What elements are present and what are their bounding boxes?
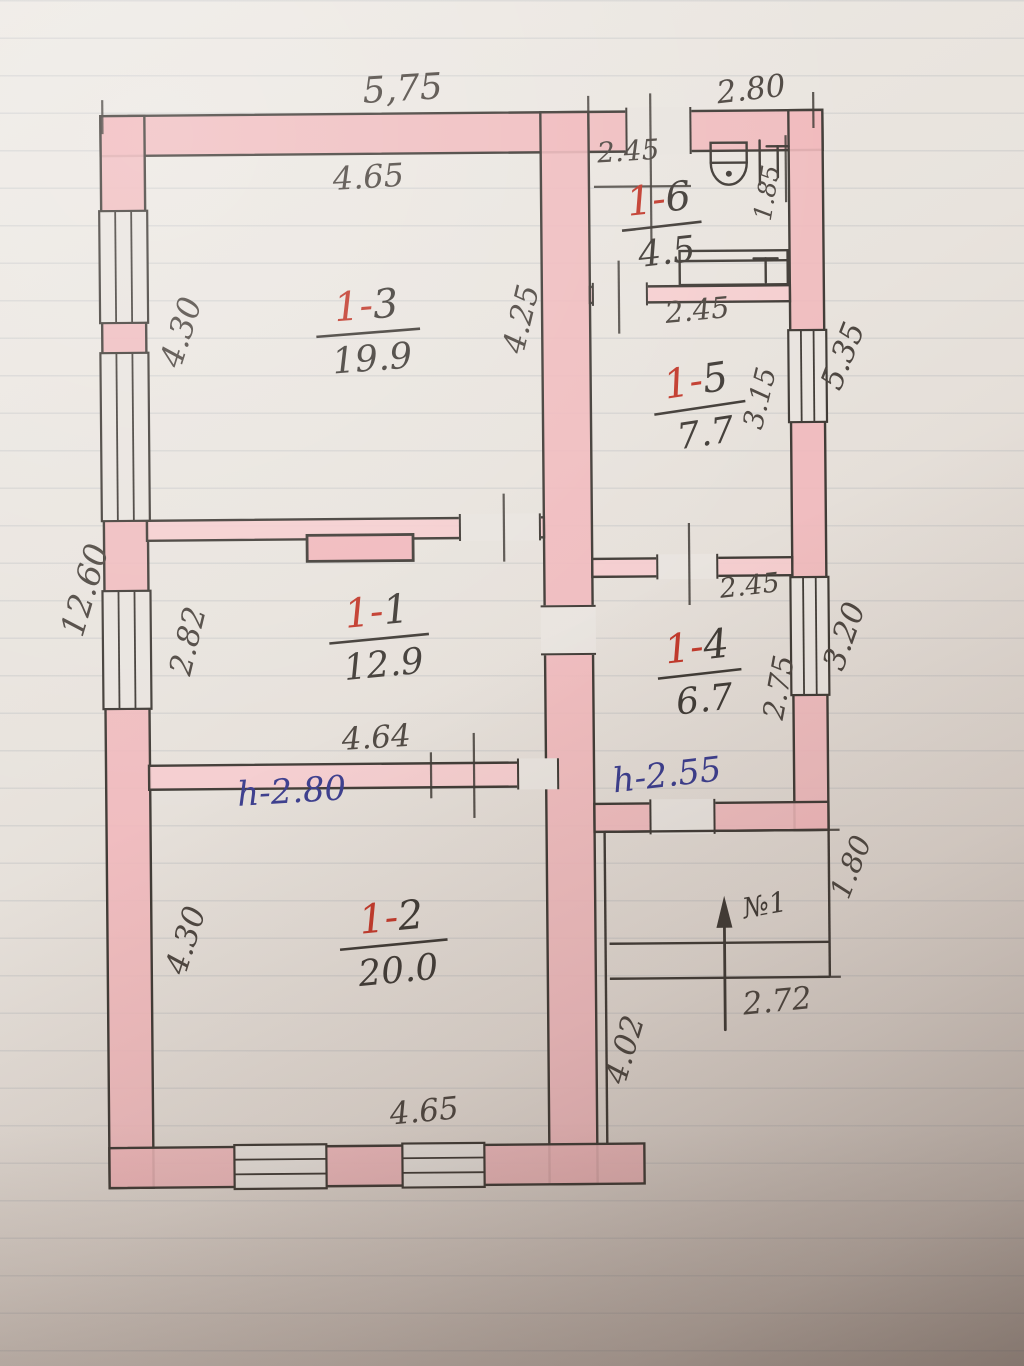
- room-label: 1-112.9: [325, 584, 434, 690]
- window-pane-line: [134, 591, 135, 709]
- window-frame: [99, 211, 148, 323]
- dimension-label: 2.45: [717, 567, 781, 605]
- dimension-label: 2.45: [595, 133, 660, 170]
- window-icon: [102, 591, 151, 709]
- door-opening: [459, 513, 541, 541]
- wall: [109, 1143, 644, 1188]
- room-label: 1-319.9: [312, 279, 423, 384]
- drawing: 5,752.804.652.451.854.304.252.455.353.15…: [47, 62, 881, 1190]
- dimension-tick: [474, 733, 475, 818]
- window-frame: [234, 1144, 326, 1189]
- dimension-label: 3.15: [736, 364, 783, 432]
- dimension-label: 1.80: [823, 831, 878, 904]
- door-opening: [649, 799, 715, 835]
- dimension-label: 2.80: [714, 68, 788, 112]
- room-id: 1-5: [661, 354, 732, 409]
- window-pane-line: [816, 577, 817, 695]
- dimension-tick: [689, 523, 690, 605]
- door-gap: [459, 513, 541, 541]
- dimension-label: 2.82: [162, 603, 213, 680]
- annotation: h-2.80: [236, 768, 347, 815]
- room-id: 1-4: [662, 621, 731, 674]
- door-opening: [517, 758, 559, 789]
- dimension-tick: [504, 494, 505, 562]
- window-icon: [402, 1143, 484, 1188]
- window-pane-line: [131, 211, 132, 323]
- stove-icon: [307, 534, 413, 561]
- room-area: 20.0: [355, 947, 440, 996]
- text-layer: 5,752.804.652.451.854.304.252.455.353.15…: [47, 62, 880, 1135]
- porch-line: [610, 942, 830, 944]
- door-opening: [541, 605, 596, 655]
- porch-line: [605, 832, 608, 1144]
- dimension-label: 5,75: [361, 66, 444, 112]
- dimension-tick: [619, 261, 620, 334]
- room-area: 4.5: [635, 229, 698, 276]
- wall: [788, 110, 828, 830]
- entrance-arrow-icon: [716, 896, 733, 1030]
- window-pane-line: [115, 211, 116, 323]
- floor-plan-svg: 5,752.804.652.451.854.304.252.455.353.15…: [0, 0, 1024, 1366]
- room-label: 1-57.7: [647, 352, 752, 462]
- dimension-label: 4.65: [331, 156, 405, 198]
- room-id: 1-1: [342, 586, 411, 638]
- window-pane-line: [235, 1174, 327, 1175]
- door-gap: [656, 554, 718, 580]
- dimension-label: 2.45: [662, 290, 731, 330]
- wall: [149, 762, 546, 789]
- dimension-label: 2.72: [740, 980, 813, 1023]
- wall: [100, 110, 822, 156]
- room-id: 1-3: [332, 280, 400, 331]
- porch-line: [829, 830, 830, 977]
- dimension-label: 4.30: [152, 292, 210, 372]
- window-icon: [100, 353, 149, 521]
- dimension-label: 4.65: [387, 1090, 460, 1133]
- window-icon: [99, 211, 148, 323]
- room-label: 1-64.5: [616, 172, 706, 277]
- dimension-label: 1.85: [748, 163, 786, 223]
- door-gap: [541, 605, 596, 655]
- window-pane-line: [803, 577, 804, 695]
- annotation: h-2.55: [610, 749, 723, 801]
- photo-of-floor-plan: 5,752.804.652.451.854.304.252.455.353.15…: [0, 0, 1024, 1366]
- annotation: №1: [739, 885, 790, 926]
- dimension-label: 4.30: [158, 902, 213, 980]
- window-pane-line: [118, 591, 119, 709]
- window-pane-line: [234, 1159, 326, 1160]
- window-pane-line: [403, 1172, 485, 1173]
- window-frame: [100, 353, 149, 521]
- room-area: 7.7: [674, 409, 737, 458]
- window-frame: [102, 591, 151, 709]
- porch-line: [610, 977, 830, 979]
- door-gap: [649, 799, 715, 835]
- room-id: 1-6: [624, 173, 693, 226]
- dimension-label: 4.64: [340, 718, 412, 758]
- window-pane-line: [402, 1158, 484, 1159]
- room-area: 19.9: [331, 335, 414, 382]
- room-label: 1-46.7: [652, 619, 746, 725]
- room-label: 1-220.0: [335, 890, 452, 997]
- door-gap: [517, 758, 559, 789]
- door-opening: [656, 554, 718, 580]
- window-pane-line: [801, 330, 802, 422]
- window-pane-line: [814, 330, 815, 422]
- dimension-label: 4.25: [496, 281, 547, 358]
- window-frame: [402, 1143, 484, 1188]
- window-icon: [234, 1144, 326, 1189]
- room-area: 12.9: [342, 641, 426, 689]
- room-id: 1-2: [357, 892, 426, 944]
- room-area: 6.7: [674, 676, 736, 723]
